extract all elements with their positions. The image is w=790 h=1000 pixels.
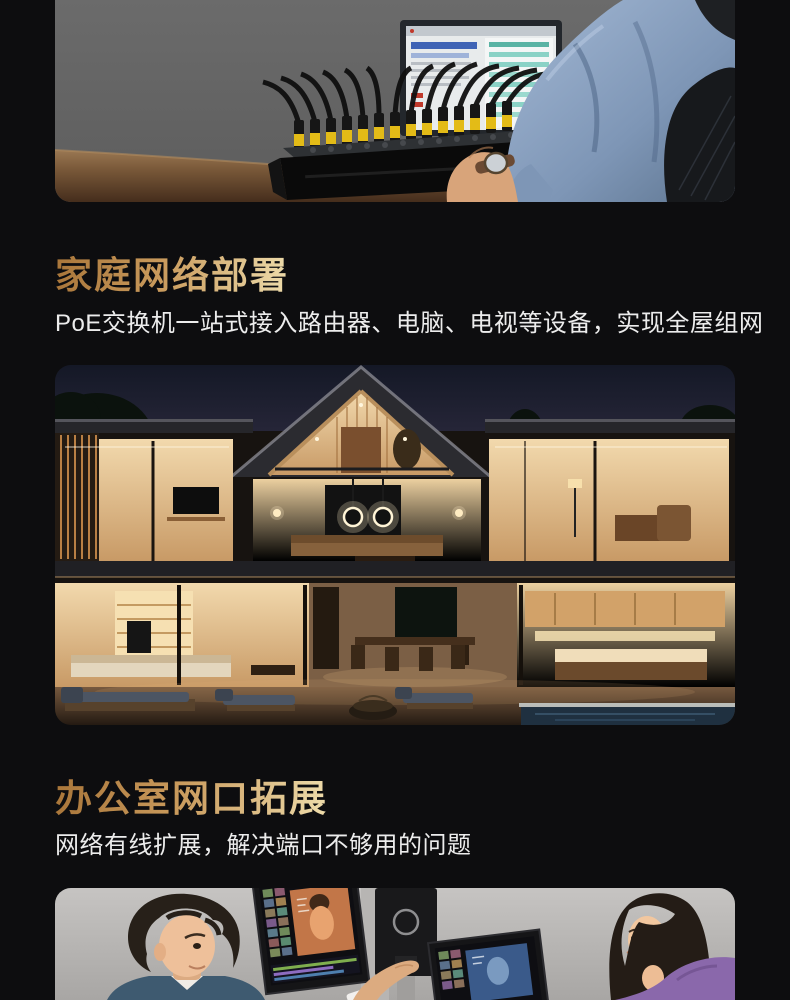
desk-scene: [55, 0, 735, 202]
pool: [519, 703, 735, 725]
office-section-title: 办公室网口拓展: [55, 779, 328, 820]
left-monitor: [252, 888, 369, 994]
lower-floor: [55, 583, 735, 687]
home-section-title: 家庭网络部署: [55, 256, 289, 297]
office-scene: [55, 888, 735, 1000]
home-network-image: [55, 365, 735, 725]
office-monitors-image: [55, 888, 735, 1000]
hero-desk-image: [55, 0, 735, 202]
floor-slab: [55, 561, 735, 577]
home-section-subtitle: PoE交换机一站式接入路由器、电脑、电视等设备，实现全屋组网: [55, 310, 763, 338]
smart-home-scene: [55, 365, 735, 725]
right-monitor: [428, 930, 549, 1000]
product-detail-page: 家庭网络部署 PoE交换机一站式接入路由器、电脑、电视等设备，实现全屋组网: [0, 0, 790, 1000]
office-section-subtitle: 网络有线扩展，解决端口不够用的问题: [55, 832, 472, 860]
